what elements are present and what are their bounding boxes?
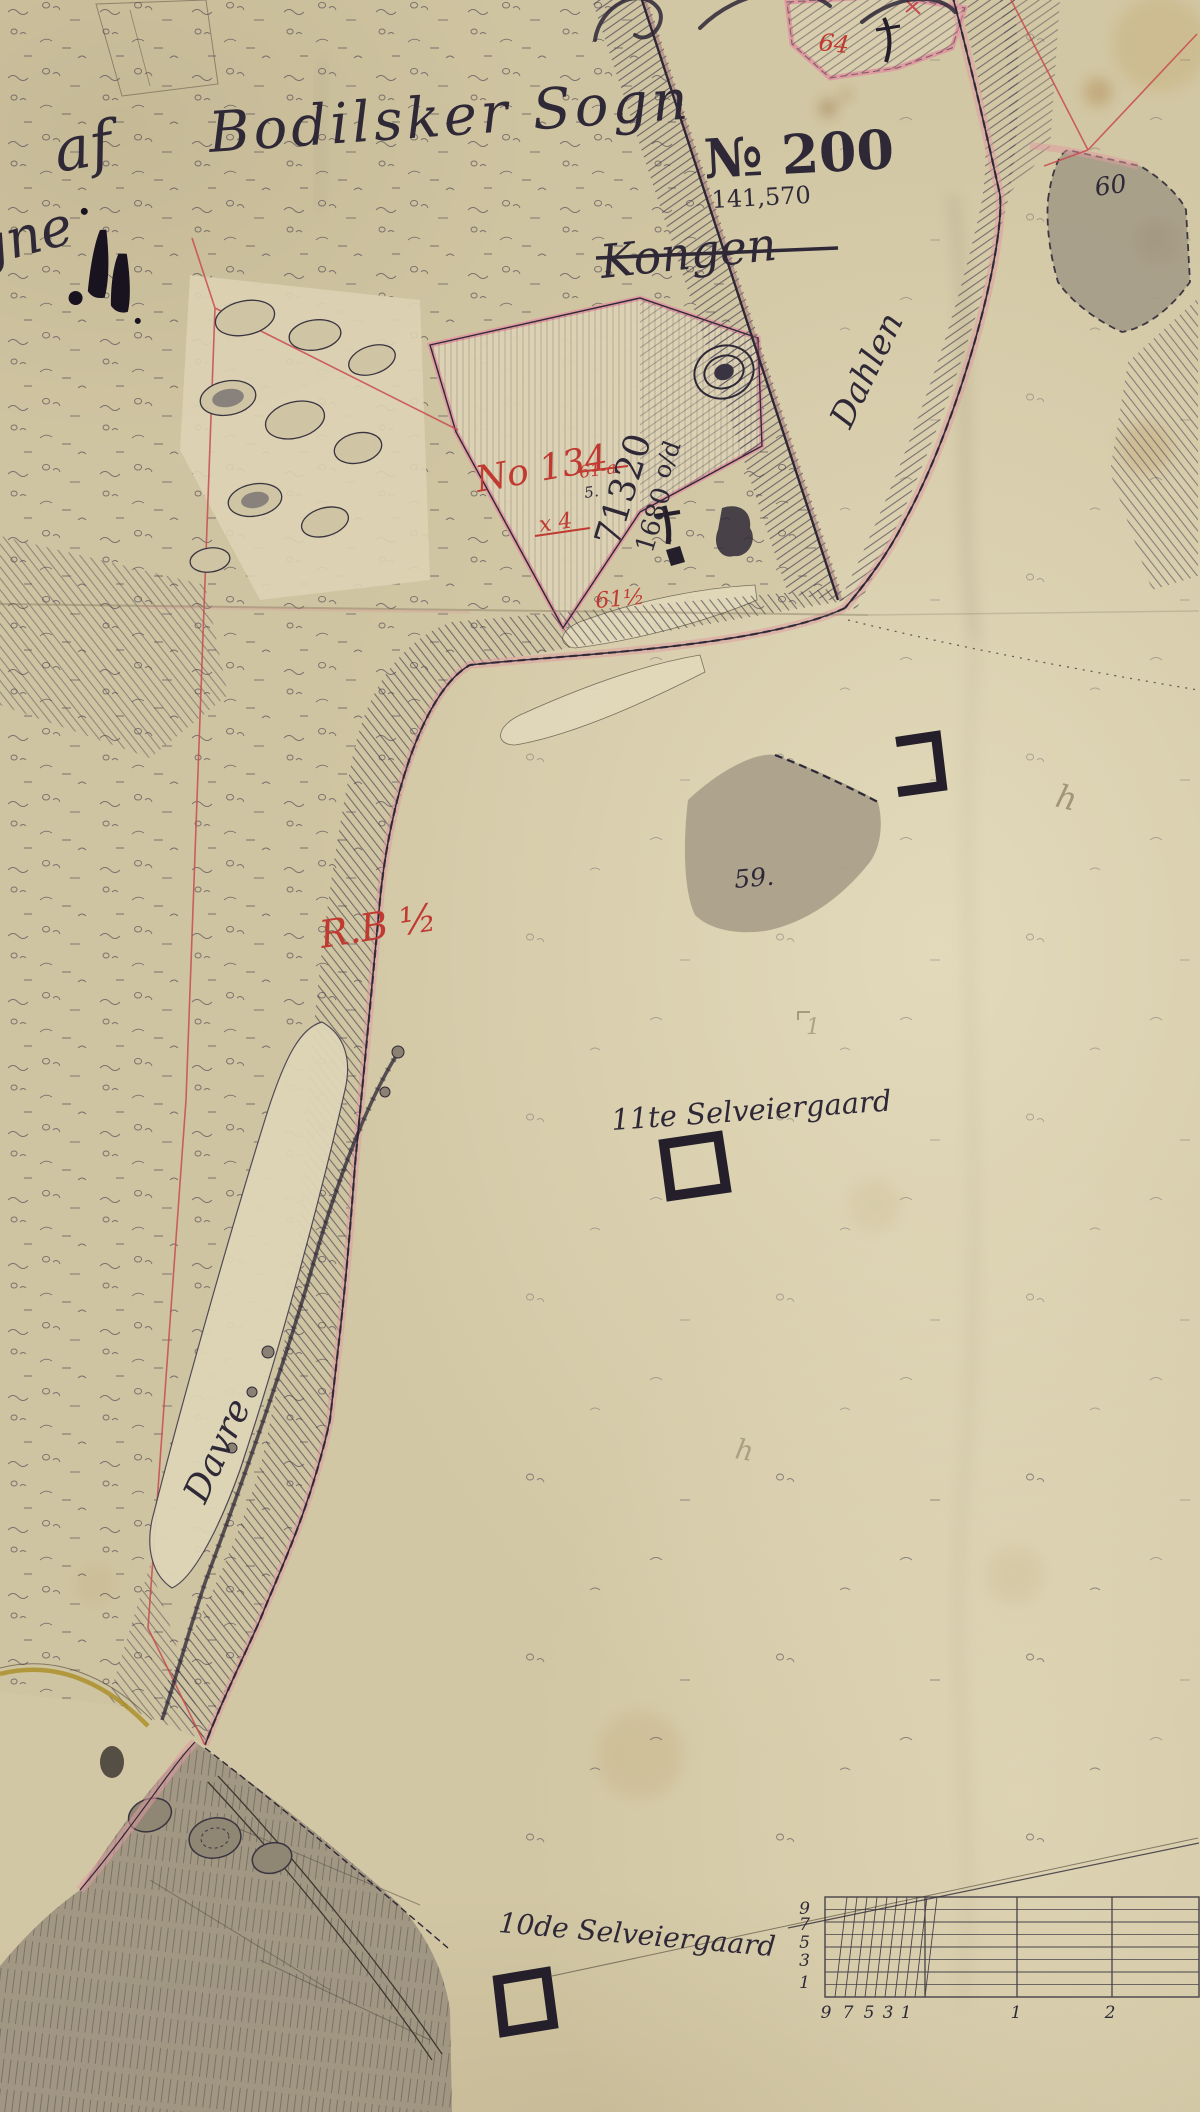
farm-10-label: 10de Selveiergaard <box>497 1906 776 1963</box>
scale-bottom-9: 9 <box>821 2003 832 2023</box>
gray-59-label: 59. <box>733 862 775 894</box>
scale-bar: 9 7 5 3 1 9 7 5 3 1 1 2 <box>788 1843 1199 2023</box>
scale-bottom-3: 3 <box>883 2003 894 2023</box>
scale-left-3: 3 <box>799 1951 810 1971</box>
red-61half: 61½ <box>594 585 645 614</box>
scale-bottom-1: 1 <box>901 2003 912 2023</box>
building-square-farm10 <box>498 1972 553 2032</box>
leader-line <box>552 1838 1198 1976</box>
title-matr-no: № 200 <box>702 117 895 191</box>
farm-pond <box>100 1746 124 1778</box>
parcel-134-note5: 5. <box>583 482 600 502</box>
scale-left-5: 5 <box>799 1933 810 1953</box>
scale-major-2: 2 <box>1104 2003 1116 2023</box>
title-area: 141,570 <box>711 181 812 214</box>
scale-left-7: 7 <box>799 1915 810 1935</box>
red-64: 64 <box>817 28 850 59</box>
farm-fields <box>0 1742 452 2112</box>
cadastral-map: af Bodilsker Sogn № 200 141,570 Kongen g… <box>0 0 1200 2112</box>
map-canvas: af Bodilsker Sogn № 200 141,570 Kongen g… <box>0 0 1200 2112</box>
pencil-one: 1 <box>806 1015 820 1040</box>
scale-left-1: 1 <box>799 1973 810 1993</box>
scale-diagonal-line <box>788 1843 1199 1928</box>
gray-60-label: 60 <box>1093 169 1129 202</box>
scale-major-1: 1 <box>1011 2003 1022 2023</box>
scale-bottom-7: 7 <box>843 2003 854 2023</box>
scale-bottom-5: 5 <box>864 2003 875 2023</box>
